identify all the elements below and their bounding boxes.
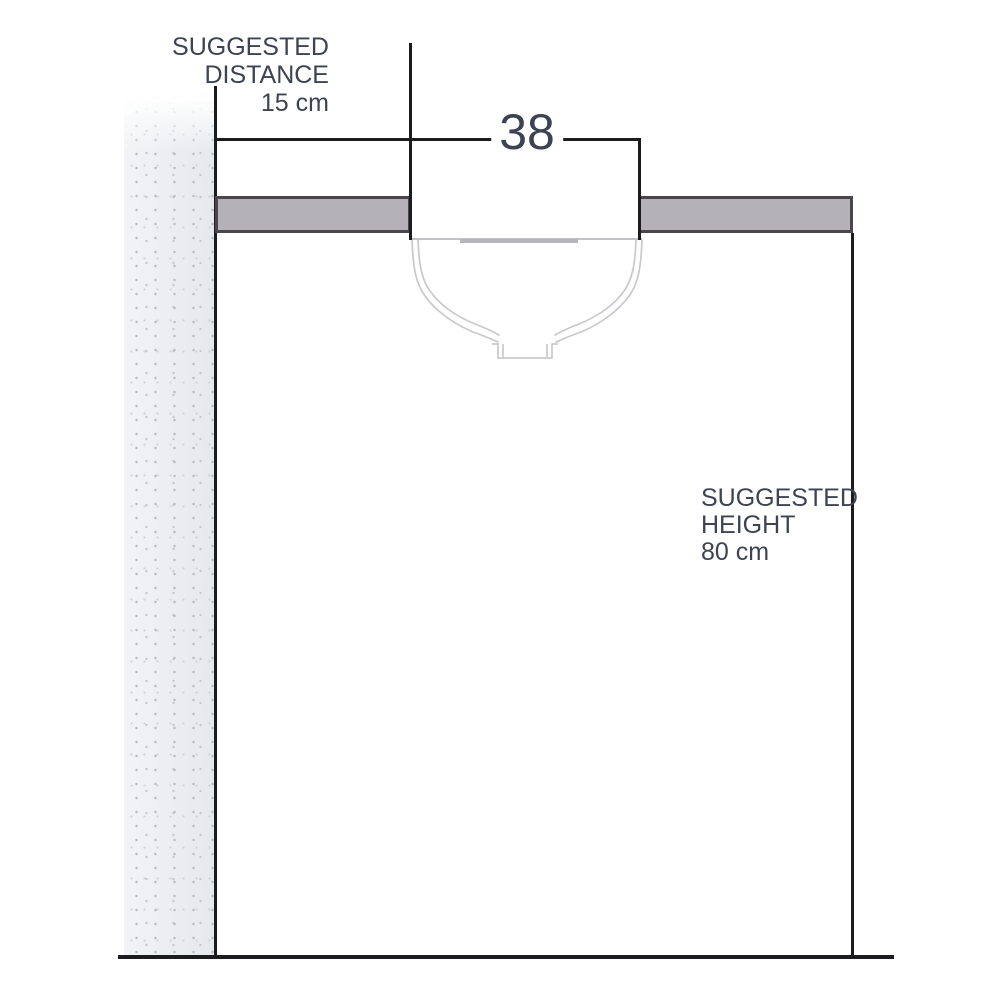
- width-value-label: 38: [491, 106, 563, 158]
- sink-drain-outline: [492, 344, 558, 358]
- sink-bowl-inner-left: [418, 240, 499, 335]
- countertop-left-segment: [215, 196, 411, 233]
- countertop-right-segment: [638, 196, 853, 233]
- suggested-height-value: 80 cm: [701, 539, 858, 566]
- sink-basin-section: [395, 226, 665, 371]
- suggested-distance-value: 15 cm: [172, 89, 329, 117]
- right-extension-line: [638, 138, 641, 240]
- suggested-distance-label: SUGGESTED DISTANCE 15 cm: [172, 33, 329, 117]
- wall-hatch: [124, 86, 217, 956]
- suggested-height-label: SUGGESTED HEIGHT 80 cm: [701, 485, 858, 566]
- height-dimension-line: [851, 233, 854, 956]
- suggested-height-line2: HEIGHT: [701, 512, 858, 539]
- suggested-distance-line1: SUGGESTED: [172, 33, 329, 61]
- sink-drain-walls: [503, 344, 547, 357]
- suggested-distance-line2: DISTANCE: [172, 61, 329, 89]
- left-extension-line: [409, 43, 412, 240]
- suggested-height-line1: SUGGESTED: [701, 485, 858, 512]
- width-dimension-line: [215, 138, 641, 141]
- floor-line: [118, 955, 894, 959]
- sink-bowl-outer-right: [556, 240, 642, 342]
- sink-bowl-inner-right: [555, 240, 636, 335]
- sink-bowl-outer-left: [412, 240, 498, 342]
- installation-diagram: SUGGESTED DISTANCE 15 cm 38 SUGGESTED HE…: [0, 0, 1000, 1000]
